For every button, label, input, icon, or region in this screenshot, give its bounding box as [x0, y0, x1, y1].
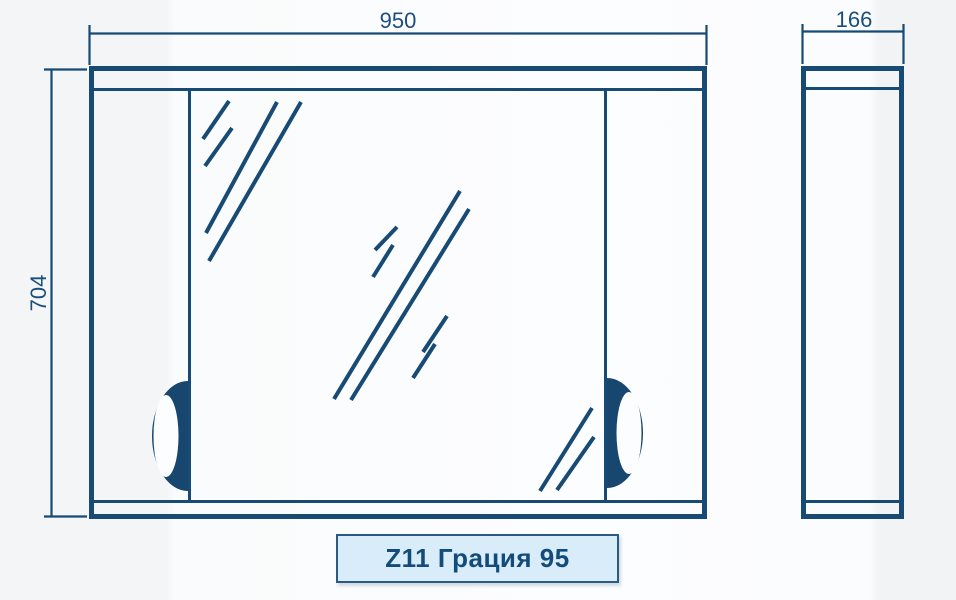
product-label: Z11 Грация 95	[385, 543, 569, 574]
height-dimension-label: 704	[26, 275, 51, 312]
left-door-handle	[152, 381, 188, 491]
right-handle-highlight	[617, 392, 642, 474]
mirror-reflection-lines	[203, 101, 594, 491]
right-door-handle	[607, 378, 643, 488]
side-outline	[804, 69, 902, 517]
side-view	[804, 69, 902, 517]
height-dimension: 704	[26, 69, 87, 517]
depth-dimension-label: 166	[836, 7, 873, 32]
depth-dimension: 166	[802, 7, 904, 64]
width-dimension: 950	[89, 8, 707, 65]
product-label-box: Z11 Грация 95	[336, 534, 619, 583]
left-handle-highlight	[154, 395, 179, 477]
front-view	[92, 69, 705, 517]
cabinet-dimension-drawing: 950 704 166	[0, 0, 956, 600]
width-dimension-label: 950	[380, 8, 417, 33]
technical-drawing-page: 950 704 166 Z11 Грация 95	[0, 0, 956, 600]
